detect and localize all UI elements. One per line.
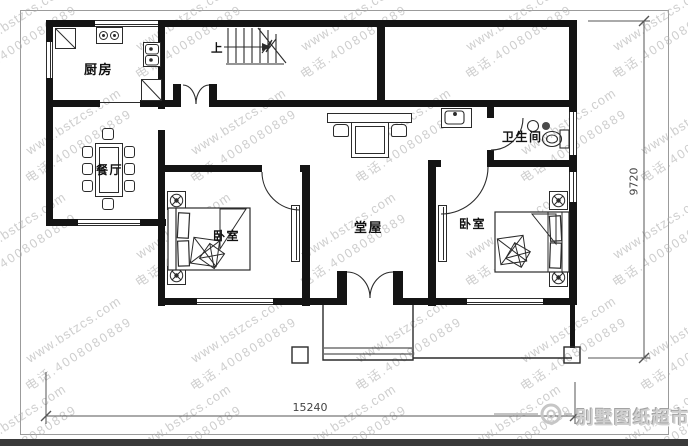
- lamp-icon: [552, 271, 564, 283]
- pier: [292, 347, 308, 363]
- door-arc: [370, 272, 393, 298]
- bed-symbol-right: [495, 212, 569, 272]
- toilet-bowl: [547, 135, 558, 143]
- faucet-dot: [454, 113, 457, 116]
- stairs: [224, 28, 286, 64]
- pier: [564, 347, 580, 363]
- brand-name: 别墅图纸超市: [576, 404, 688, 430]
- lamp-icon: [552, 194, 564, 206]
- door-arc: [262, 172, 300, 210]
- bed-frame: [495, 212, 569, 272]
- logo-line: [564, 413, 572, 415]
- faucet-dot: [150, 59, 153, 62]
- stairs-up-label: 上: [211, 40, 223, 56]
- door-arc: [441, 167, 488, 214]
- dimension-width-label: 15240: [278, 401, 342, 414]
- double-ring-icon: [539, 402, 563, 426]
- kitchen-label: 厨房: [84, 59, 113, 78]
- burner-dot: [103, 35, 105, 37]
- bottom-bar: [0, 439, 688, 446]
- porch-outline: [323, 305, 413, 360]
- porch-steps: [324, 348, 412, 354]
- fridge-diagonal: [56, 29, 75, 48]
- floor-drain-icon: [542, 122, 550, 130]
- toilet-symbol: [543, 132, 562, 147]
- door-arc: [196, 85, 209, 104]
- door-arc: [183, 85, 196, 104]
- lamp-icon: [170, 269, 182, 281]
- dimension-height-label: 9720: [628, 152, 641, 212]
- logo-line: [494, 413, 538, 415]
- dining-label: 餐厅: [96, 161, 123, 178]
- faucet-dot: [150, 48, 153, 51]
- bathroom-label: 卫生间: [502, 128, 543, 145]
- hall-label: 堂屋: [354, 217, 383, 236]
- lamp-icon: [170, 194, 182, 206]
- bedroom-right-label: 卧室: [459, 215, 486, 232]
- door-arc: [347, 272, 370, 298]
- cabinet-diagonal: [142, 80, 161, 100]
- burner-dot: [114, 35, 116, 37]
- bedroom-left-label: 卧室: [213, 227, 240, 244]
- floorplan-page: www.bstzcs.com电话.4008080889www.bstzcs.co…: [0, 0, 688, 446]
